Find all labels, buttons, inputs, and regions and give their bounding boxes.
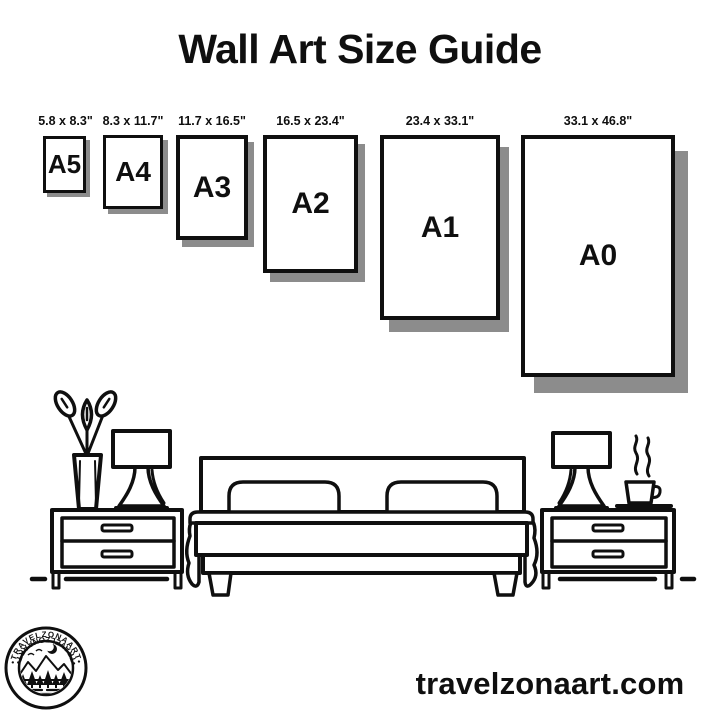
lamp-shade bbox=[553, 433, 610, 467]
plant-vase-icon bbox=[51, 389, 119, 509]
bird-icon bbox=[36, 650, 42, 652]
bird-icon bbox=[28, 654, 34, 656]
page-title: Wall Art Size Guide bbox=[0, 26, 720, 73]
double-bed-icon bbox=[187, 458, 537, 595]
lamp-stem bbox=[119, 467, 164, 506]
size-name-a0: A0 bbox=[579, 239, 617, 273]
size-name-a2: A2 bbox=[291, 187, 329, 221]
pillow-icon bbox=[387, 482, 497, 512]
lamp-shade bbox=[113, 431, 170, 467]
size-name-a4: A4 bbox=[115, 156, 151, 188]
size-label-a1: 23.4 x 33.1" bbox=[360, 114, 520, 129]
steam bbox=[635, 436, 638, 474]
nightstand-icon bbox=[542, 510, 674, 588]
size-box-a5: A5 bbox=[43, 136, 86, 193]
size-box-a0: A0 bbox=[521, 135, 675, 377]
size-name-a5: A5 bbox=[48, 149, 81, 180]
size-name-a3: A3 bbox=[193, 171, 231, 205]
lamp-stem bbox=[559, 467, 604, 506]
bedroom-illustration bbox=[0, 380, 720, 610]
bed-leg bbox=[209, 573, 231, 595]
duvet-front bbox=[196, 523, 527, 555]
brand-logo: •TRAVELZONAART• •TRAVELZONAART• bbox=[2, 624, 92, 714]
bed-leg bbox=[494, 573, 517, 595]
size-box-a4: A4 bbox=[103, 135, 163, 209]
table-lamp-icon bbox=[113, 431, 170, 508]
size-box-a1: A1 bbox=[380, 135, 500, 320]
size-label-a0: 33.1 x 46.8" bbox=[518, 114, 678, 129]
steam bbox=[647, 438, 650, 476]
table-lamp-icon bbox=[553, 433, 610, 508]
cup-body bbox=[626, 482, 654, 503]
nightstand-icon bbox=[52, 510, 182, 588]
size-box-a2: A2 bbox=[263, 135, 358, 273]
wall-art-size-guide-poster: Wall Art Size Guide 5.8 x 8.3" 8.3 x 11.… bbox=[0, 0, 720, 720]
pillow-icon bbox=[229, 482, 339, 512]
size-name-a1: A1 bbox=[421, 211, 459, 245]
website-url: travelzonaart.com bbox=[380, 666, 720, 702]
coffee-cup-icon bbox=[617, 436, 671, 506]
size-box-a3: A3 bbox=[176, 135, 248, 240]
bed-base bbox=[203, 555, 520, 573]
